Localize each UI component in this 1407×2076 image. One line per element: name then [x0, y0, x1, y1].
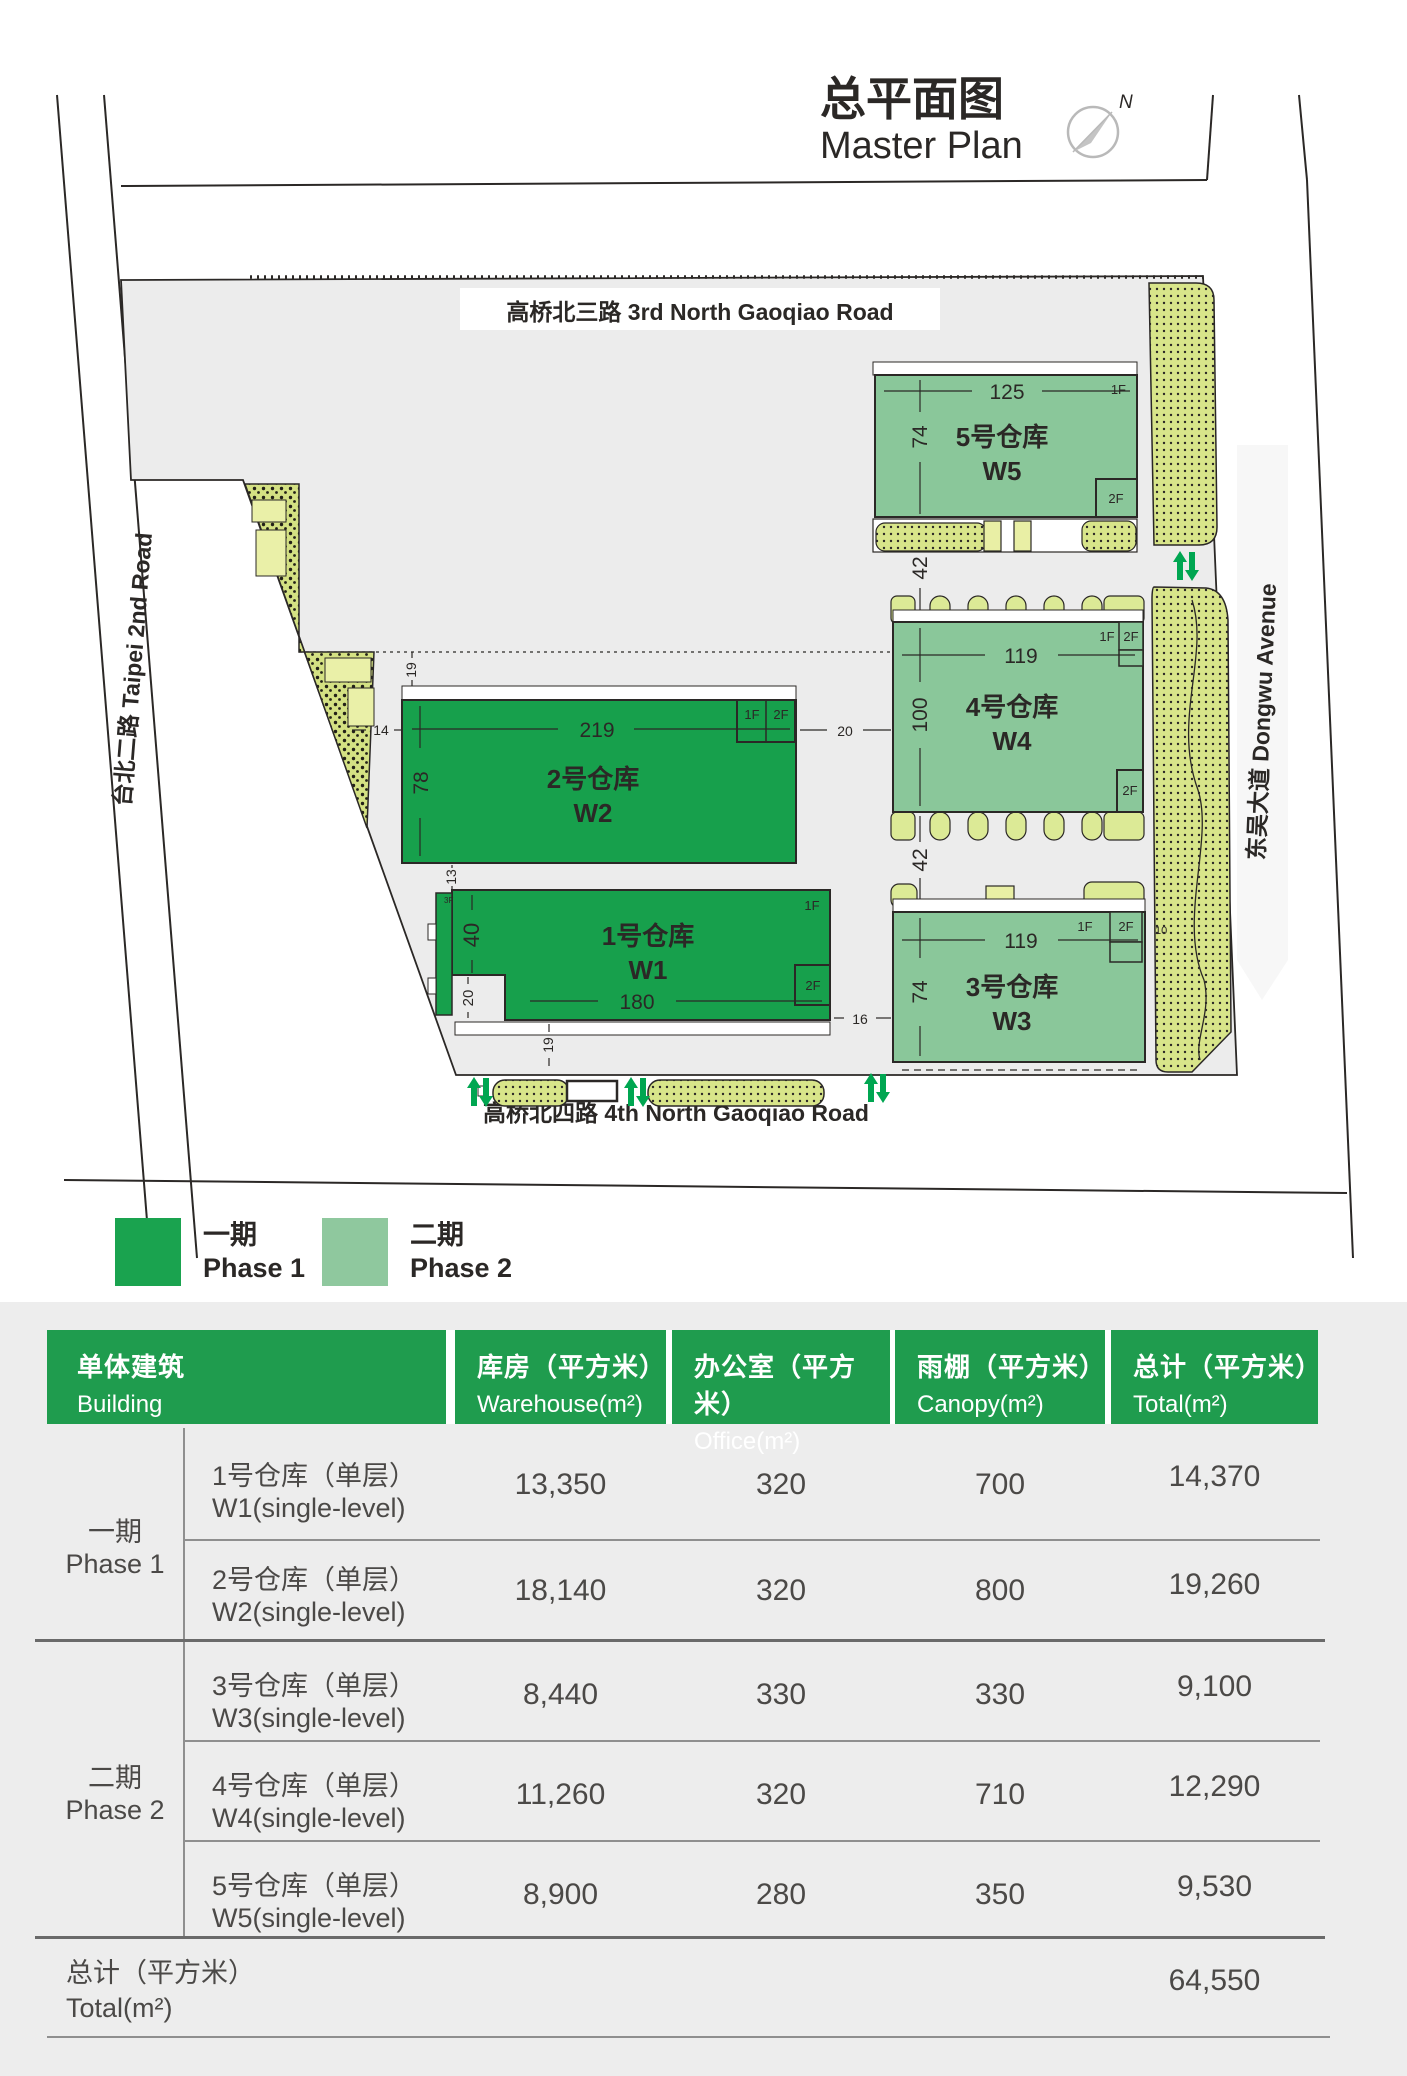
row-w1-name: 1号仓库（单层） W1(single-level) [212, 1460, 416, 1525]
south-landscape-strips [478, 1080, 824, 1106]
row-w2-total: 19,260 [1111, 1568, 1318, 1602]
row-w2-name: 2号仓库（单层） W2(single-level) [212, 1564, 416, 1629]
divider-w1-w2 [183, 1539, 1320, 1541]
col-header-office: 办公室（平方米） Office(m²) [672, 1330, 890, 1424]
w4-2f-lower-label: 2F [1122, 783, 1137, 798]
col-header-canopy: 雨棚（平方米） Canopy(m²) [895, 1330, 1105, 1424]
row-w5-canopy: 350 [895, 1878, 1105, 1912]
col-header-total-en: Total(m²) [1133, 1391, 1318, 1419]
w5-dim-74: 74 [909, 425, 932, 449]
w1-code: W1 [629, 955, 668, 985]
row-w1-en: W1(single-level) [212, 1492, 416, 1524]
east-landscape-strip [1149, 283, 1231, 1072]
row-w1-zh: 1号仓库（单层） [212, 1460, 416, 1492]
w2-2f-label: 2F [773, 707, 788, 722]
w4-dim-42: 42 [909, 848, 932, 871]
row-w3-zh: 3号仓库（单层） [212, 1670, 416, 1702]
table-footer-en: Total(m²) [66, 1991, 255, 2026]
w5-dim-42: 42 [909, 556, 932, 579]
row-w1-warehouse: 13,350 [455, 1468, 666, 1502]
w4-dim-119: 119 [1004, 645, 1037, 668]
row-w3-warehouse: 8,440 [455, 1678, 666, 1712]
row-w2-canopy: 800 [895, 1574, 1105, 1608]
row-w4-en: W4(single-level) [212, 1802, 416, 1834]
legend-phase2-label: 二期 Phase 2 [410, 1219, 512, 1285]
w3-dim-10: 10 [1155, 925, 1167, 937]
legend-phase1-swatch [115, 1218, 181, 1286]
w3-dim-74: 74 [909, 980, 932, 1004]
col-header-total: 总计（平方米） Total(m²) [1111, 1330, 1318, 1424]
w1-3f-label: 3F [444, 896, 453, 905]
w5-name: 5号仓库 [956, 422, 1048, 452]
w5-dim-125: 125 [989, 381, 1024, 404]
w2-dim-78: 78 [410, 771, 433, 794]
row-w3-name: 3号仓库（单层） W3(single-level) [212, 1670, 416, 1735]
w1-2f-label: 2F [805, 978, 820, 993]
w3-2f-label: 2F [1118, 919, 1133, 934]
w3-code: W3 [993, 1006, 1032, 1036]
compass-icon: N [1068, 92, 1133, 157]
master-plan-page: { "title": { "zh": "总平面图", "en": "Master… [0, 0, 1407, 2076]
compass-north-label: N [1119, 92, 1133, 113]
row-w2-zh: 2号仓库（单层） [212, 1564, 416, 1596]
w1-w3-gap-dim: 16 [852, 1011, 868, 1027]
row-w4-warehouse: 11,260 [455, 1778, 666, 1812]
row-w1-total: 14,370 [1111, 1460, 1318, 1494]
legend-phase2-en: Phase 2 [410, 1252, 512, 1285]
table-bottom-rule [47, 2036, 1330, 2038]
w3-dim-119: 119 [1004, 930, 1037, 953]
w5-code: W5 [983, 456, 1022, 486]
row-w2-en: W2(single-level) [212, 1596, 416, 1628]
building-w2: 2号仓库 W2 1F 2F 219 78 14 19 13 [352, 652, 796, 890]
col-header-warehouse-en: Warehouse(m²) [477, 1391, 666, 1419]
phase1-row-label: 一期 Phase 1 [47, 1516, 183, 1581]
col-header-office-en: Office(m²) [694, 1428, 890, 1456]
divider-w3-w4 [183, 1740, 1320, 1742]
row-w2-warehouse: 18,140 [455, 1574, 666, 1608]
w1-1f-label: 1F [804, 898, 819, 913]
north-road-label: 高桥北三路 3rd North Gaoqiao Road [506, 299, 893, 325]
phase2-row-en: Phase 2 [47, 1794, 183, 1826]
col-header-office-zh: 办公室（平方米） [694, 1347, 890, 1421]
divider-vertical [183, 1428, 185, 1936]
row-w2-office: 320 [672, 1574, 890, 1608]
col-header-building-zh: 单体建筑 [77, 1347, 446, 1384]
row-w5-warehouse: 8,900 [455, 1878, 666, 1912]
row-w5-en: W5(single-level) [212, 1902, 416, 1934]
col-header-canopy-zh: 雨棚（平方米） [917, 1347, 1105, 1384]
col-header-building: 单体建筑 Building [47, 1330, 446, 1424]
legend-phase1-en: Phase 1 [203, 1252, 305, 1285]
row-w5-name: 5号仓库（单层） W5(single-level) [212, 1870, 416, 1935]
w4-name: 4号仓库 [966, 692, 1058, 722]
legend-phase1-label: 一期 Phase 1 [203, 1219, 305, 1285]
row-w3-total: 9,100 [1111, 1670, 1318, 1704]
w1-dim-180: 180 [619, 991, 654, 1014]
w1-dim-40: 40 [459, 923, 484, 947]
row-w4-office: 320 [672, 1778, 890, 1812]
phase2-row-zh: 二期 [47, 1762, 183, 1794]
table-footer-label: 总计（平方米） Total(m²) [66, 1956, 255, 2026]
w2-dim-219: 219 [579, 719, 614, 742]
title-zh: 总平面图 [820, 73, 1004, 125]
legend-phase1-zh: 一期 [203, 1219, 305, 1252]
row-w4-name: 4号仓库（单层） W4(single-level) [212, 1770, 416, 1835]
col-header-warehouse: 库房（平方米） Warehouse(m²) [455, 1330, 666, 1424]
phase2-row-label: 二期 Phase 2 [47, 1762, 183, 1827]
row-w3-canopy: 330 [895, 1678, 1105, 1712]
row-w1-office: 320 [672, 1468, 890, 1502]
row-w5-office: 280 [672, 1878, 890, 1912]
w3-1f-label: 1F [1077, 919, 1092, 934]
w2-w4-gap-dim: 20 [837, 723, 853, 739]
table-footer-zh: 总计（平方米） [66, 1956, 255, 1991]
w4-2f-label: 2F [1123, 629, 1138, 644]
col-header-canopy-en: Canopy(m²) [917, 1391, 1105, 1419]
w5-1f-label: 1F [1111, 382, 1126, 397]
w4-code: W4 [993, 726, 1033, 756]
row-w1-canopy: 700 [895, 1468, 1105, 1502]
w2-dim-19: 19 [403, 662, 419, 678]
w1-dim-19-below: 19 [540, 1037, 556, 1053]
w3-name: 3号仓库 [966, 972, 1058, 1002]
w2-name: 2号仓库 [547, 764, 639, 794]
table-footer-value: 64,550 [1111, 1964, 1318, 1998]
w2-w1-gap-dim: 13 [443, 869, 459, 885]
w4-1f-label: 1F [1099, 629, 1114, 644]
w2-code: W2 [574, 798, 613, 828]
w2-1f-label: 1F [744, 707, 759, 722]
row-w3-office: 330 [672, 1678, 890, 1712]
legend-phase2-swatch [322, 1218, 388, 1286]
col-header-total-zh: 总计（平方米） [1133, 1347, 1318, 1384]
row-w5-total: 9,530 [1111, 1870, 1318, 1904]
legend-phase2-zh: 二期 [410, 1219, 512, 1252]
title-en: Master Plan [820, 125, 1023, 167]
row-w4-canopy: 710 [895, 1778, 1105, 1812]
w1-dim-20: 20 [460, 990, 477, 1007]
area-table: 单体建筑 Building 库房（平方米） Warehouse(m²) 办公室（… [0, 1302, 1407, 2076]
col-header-warehouse-zh: 库房（平方米） [477, 1347, 666, 1384]
row-w5-zh: 5号仓库（单层） [212, 1870, 416, 1902]
row-w3-en: W3(single-level) [212, 1702, 416, 1734]
row-w4-zh: 4号仓库（单层） [212, 1770, 416, 1802]
divider-w4-w5 [183, 1840, 1320, 1842]
phase1-row-zh: 一期 [47, 1516, 183, 1548]
w2-dim-14: 14 [373, 722, 389, 738]
divider-body-footer [35, 1936, 1325, 1939]
page-title: 总平面图 Master Plan [820, 73, 1023, 167]
w4-dim-100: 100 [909, 697, 932, 732]
site-plan: 总平面图 Master Plan N 高桥北三路 3rd North Gaoqi… [0, 0, 1407, 1302]
col-header-building-en: Building [77, 1391, 446, 1419]
w1-name: 1号仓库 [602, 921, 694, 951]
w5-2f-label: 2F [1108, 491, 1123, 506]
phase1-row-en: Phase 1 [47, 1548, 183, 1580]
divider-phase1-phase2 [35, 1639, 1325, 1642]
row-w4-total: 12,290 [1111, 1770, 1318, 1804]
